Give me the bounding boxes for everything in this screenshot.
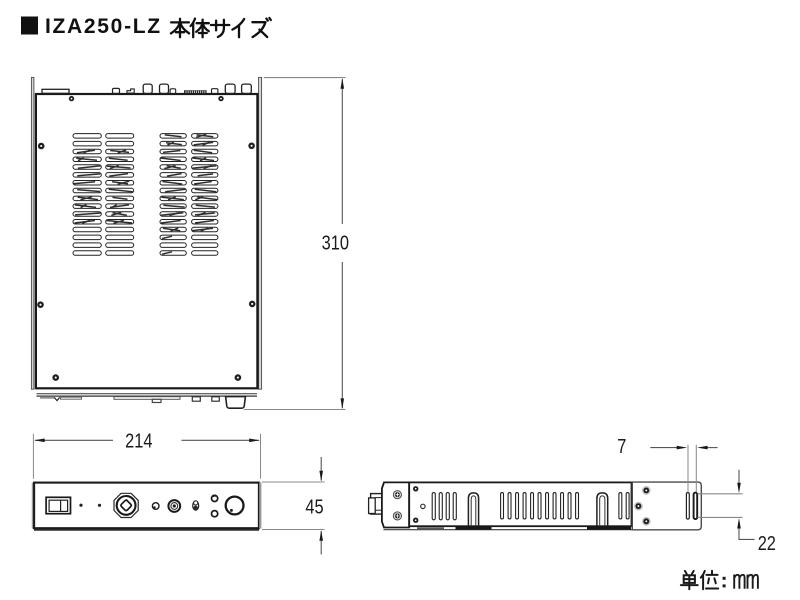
svg-text:22: 22 xyxy=(758,531,776,554)
svg-text:IZA250-LZ: IZA250-LZ xyxy=(45,15,162,38)
svg-text:214: 214 xyxy=(125,429,152,452)
svg-text:310: 310 xyxy=(322,231,349,254)
svg-text:45: 45 xyxy=(305,495,323,518)
svg-text:7: 7 xyxy=(617,435,626,458)
